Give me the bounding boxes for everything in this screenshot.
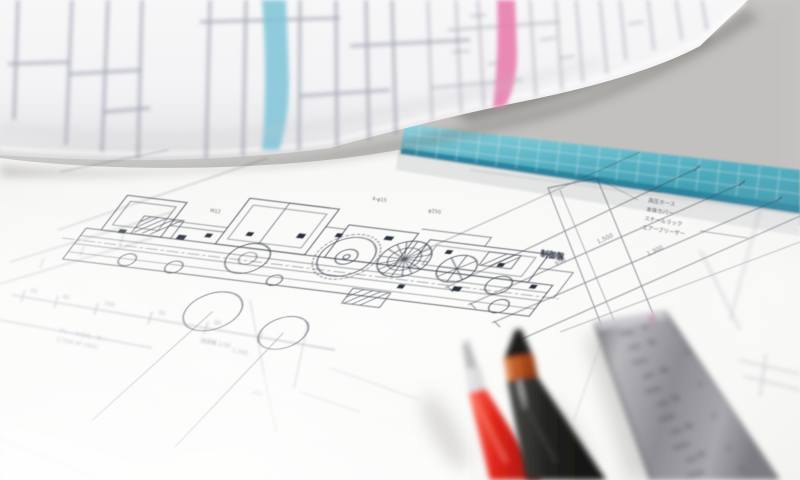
ruler-pink-dot (649, 315, 654, 320)
photo-canvas: 4-φ15 φ250 M12 1,500 1,300 950 制御盤 高圧ホース… (0, 0, 800, 480)
blueprint-photo: 4-φ15 φ250 M12 1,500 1,300 950 制御盤 高圧ホース… (0, 0, 800, 480)
